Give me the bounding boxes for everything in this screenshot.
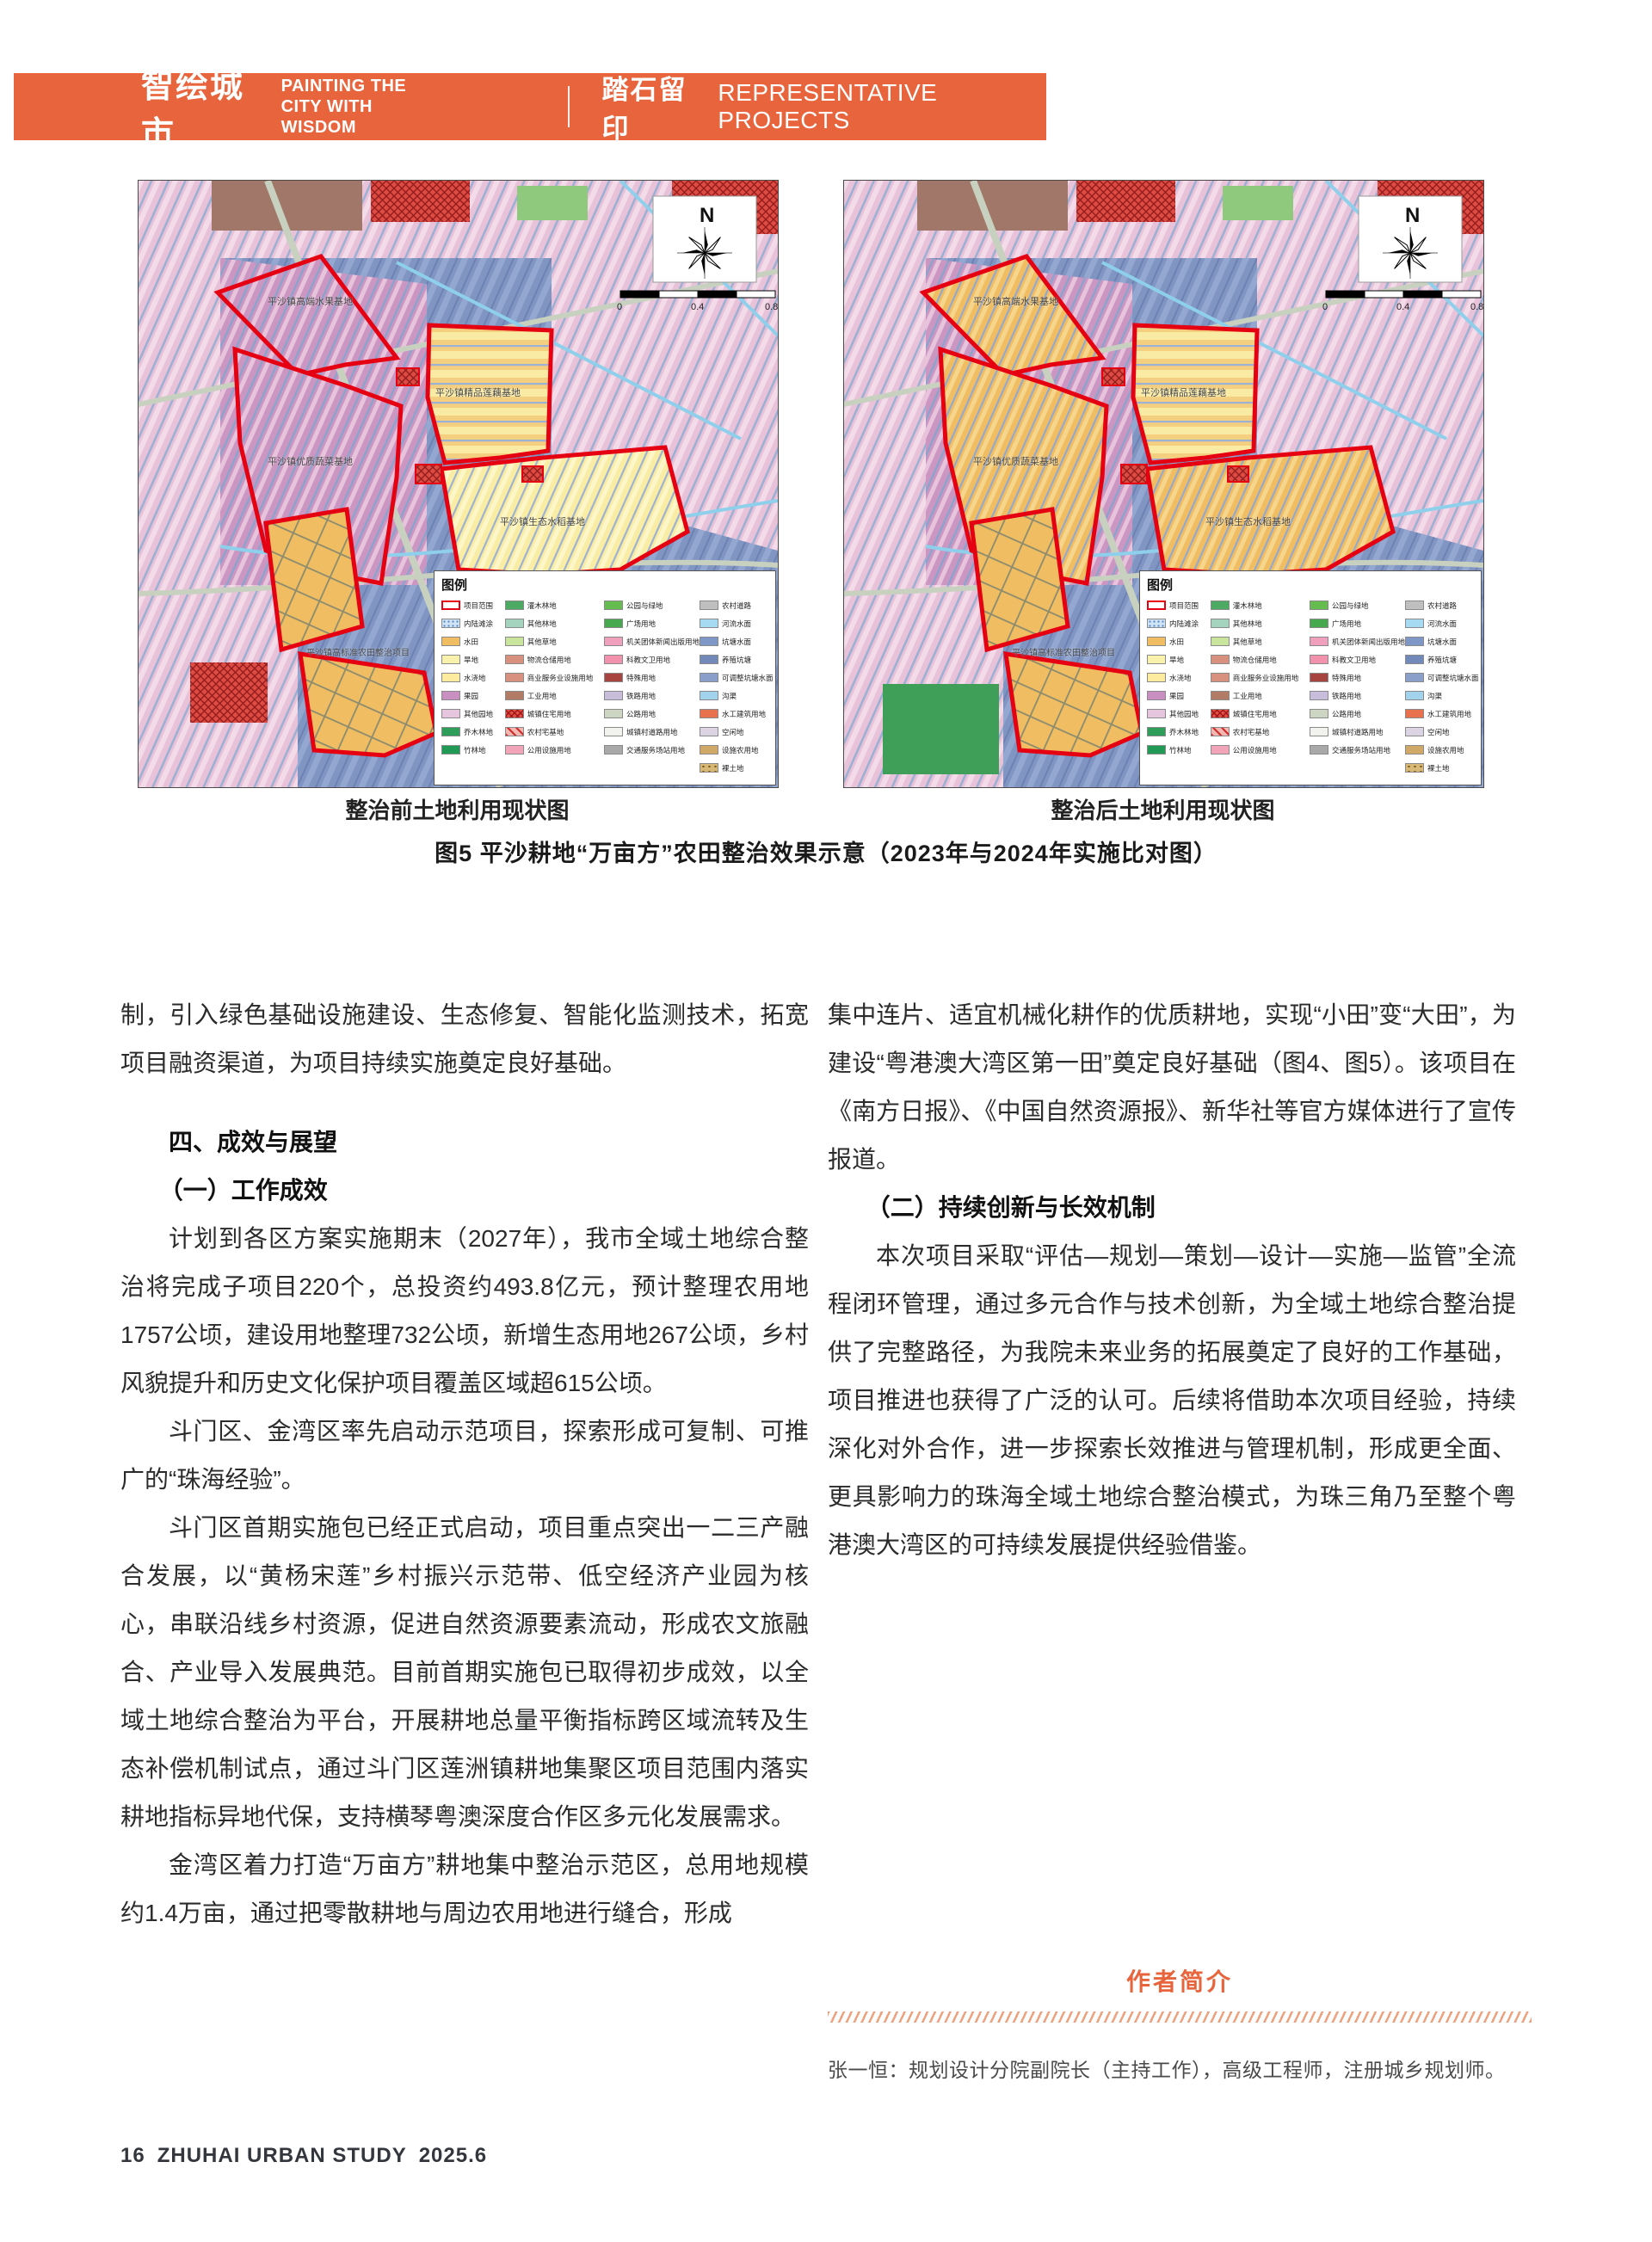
paragraph: 计划到各区方案实施期末（2027年），我市全域土地综合整治将完成子项目220个，… — [120, 1215, 809, 1407]
legend-label: 旱地 — [1169, 655, 1184, 665]
legend-swatch — [1211, 727, 1230, 736]
legend-label: 空闲地 — [1427, 727, 1450, 737]
village-patch — [1228, 466, 1248, 482]
legend-label: 水浇地 — [464, 673, 486, 683]
legend-label: 项目范围 — [1169, 601, 1199, 611]
paragraph: 本次项目采取“评估—规划—策划—设计—实施—监管”全流程闭环管理，通过多元合作与… — [828, 1232, 1516, 1569]
page-number: 16 — [120, 2144, 145, 2167]
subsection-heading-1: （一）工作成效 — [120, 1167, 809, 1215]
legend-label: 特殊用地 — [626, 673, 656, 683]
legend-label: 果园 — [464, 691, 478, 701]
legend-swatch — [441, 601, 460, 610]
legend-label: 农村道路 — [722, 601, 751, 611]
legend-label: 乔木林地 — [464, 727, 493, 737]
legend-swatch — [1147, 745, 1166, 755]
area-label: 平沙镇高标准农田整治项目 — [306, 645, 410, 658]
legend-item: 水浇地 — [441, 668, 505, 687]
legend-swatch — [441, 709, 460, 718]
legend-label: 河流水面 — [1427, 619, 1457, 629]
legend-swatch — [1147, 673, 1166, 682]
village-patch — [190, 662, 268, 723]
area-label: 平沙镇精品莲藕基地 — [1141, 385, 1226, 399]
legend-swatch — [441, 655, 460, 664]
legend-item: 内陆滩涂 — [1147, 614, 1211, 632]
legend-swatch — [604, 637, 623, 646]
legend-label: 裸土地 — [722, 763, 744, 773]
legend-swatch — [1147, 709, 1166, 718]
legend-item: 灌木林地 — [1211, 596, 1310, 614]
legend-label: 其他园地 — [464, 709, 493, 719]
legend-item: 其他草地 — [505, 632, 604, 650]
area-label: 平沙镇优质蔬菜基地 — [973, 454, 1058, 468]
legend-swatch — [1211, 673, 1230, 682]
legend-label: 灌木林地 — [527, 601, 557, 611]
legend-label: 水田 — [1169, 637, 1184, 647]
legend-item: 科教文卫用地 — [604, 650, 700, 668]
legend-label: 其他园地 — [1169, 709, 1199, 719]
legend-item: 农村宅基地 — [1211, 723, 1310, 741]
hatched-divider — [828, 2011, 1532, 2023]
legend-swatch — [1211, 619, 1230, 628]
legend-column: 项目范围内陆滩涂水田旱地水浇地果园其他园地乔木林地竹林地 — [441, 596, 505, 777]
area-label: 平沙镇优质蔬菜基地 — [268, 454, 353, 468]
legend-swatch — [441, 745, 460, 755]
village-patch — [522, 466, 543, 482]
legend-swatch — [700, 709, 718, 718]
legend-item: 工业用地 — [505, 687, 604, 705]
legend-swatch — [604, 655, 623, 664]
north-arrow: N — [1359, 196, 1462, 282]
legend-label: 水田 — [464, 637, 478, 647]
legend-label: 灌木林地 — [1233, 601, 1262, 611]
legend-item: 可调整坑塘水面 — [1405, 668, 1477, 687]
legend-item: 商业服务业设施用地 — [1211, 668, 1310, 687]
legend-item: 公用设施用地 — [1211, 741, 1310, 759]
legend-label: 城镇住宅用地 — [1233, 709, 1277, 719]
legend-swatch — [1310, 709, 1328, 718]
legend-swatch — [505, 745, 524, 755]
paragraph-continued: 制，引入绿色基础设施建设、生态修复、智能化监测技术，拓宽项目融资渠道，为项目持续… — [120, 991, 809, 1087]
legend-item: 沟渠 — [1405, 687, 1477, 705]
section-title-en: REPRESENTATIVE PROJECTS — [718, 79, 1046, 134]
legend-swatch — [700, 619, 718, 628]
legend-swatch — [1211, 637, 1230, 646]
legend-label: 机关团体新闻出版用地 — [626, 637, 700, 647]
legend-item: 工业用地 — [1211, 687, 1310, 705]
header-divider — [568, 86, 570, 127]
legend-swatch — [700, 745, 718, 755]
legend-item: 其他林地 — [1211, 614, 1310, 632]
legend-swatch — [1211, 745, 1230, 755]
legend-item: 公园与绿地 — [604, 596, 700, 614]
legend-swatch — [1310, 691, 1328, 700]
legend-swatch — [700, 691, 718, 700]
author-section: 作者简介 张一恒：规划设计分院副院长（主持工作），高级工程师，注册城乡规划师。 — [828, 1963, 1532, 2083]
legend-item: 城镇村道路用地 — [1310, 723, 1405, 741]
legend-label: 农村宅基地 — [1233, 727, 1270, 737]
svg-text:N: N — [1405, 204, 1420, 227]
svg-text:0.4: 0.4 — [1396, 302, 1409, 312]
legend-swatch — [1310, 601, 1328, 610]
svg-text:0.4: 0.4 — [691, 302, 704, 312]
section-heading: 四、成效与展望 — [120, 1118, 809, 1167]
legend-item: 可调整坑塘水面 — [700, 668, 772, 687]
legend-swatch — [1310, 637, 1328, 646]
legend-item: 物流仓储用地 — [505, 650, 604, 668]
legend-label: 科教文卫用地 — [1332, 655, 1376, 665]
map-caption-after: 整治后土地利用现状图 — [843, 793, 1482, 825]
legend-label: 广场用地 — [626, 619, 656, 629]
issue-number: 2025.6 — [419, 2144, 487, 2167]
legend-swatch — [1405, 637, 1424, 646]
green-block — [1223, 186, 1293, 220]
land-use-map-before: N 0 — [138, 180, 779, 788]
legend-item: 广场用地 — [1310, 614, 1405, 632]
paragraph: 斗门区、金湾区率先启动示范项目，探索形成可复制、可推广的“珠海经验”。 — [120, 1407, 809, 1504]
legend-item: 其他园地 — [1147, 705, 1211, 723]
legend-swatch — [1147, 655, 1166, 664]
legend-item: 项目范围 — [1147, 596, 1211, 614]
legend-label: 城镇村道路用地 — [626, 727, 678, 737]
figure-caption: 图5 平沙耕地“万亩方”农田整治效果示意（2023年与2024年实施比对图） — [0, 835, 1652, 868]
paragraph-continued: 集中连片、适宜机械化耕作的优质耕地，实现“小田”变“大田”，为建设“粤港澳大湾区… — [828, 991, 1516, 1184]
legend-label: 竹林地 — [464, 745, 486, 755]
legend-item: 广场用地 — [604, 614, 700, 632]
legend-label: 物流仓储用地 — [527, 655, 571, 665]
legend-swatch — [604, 673, 623, 682]
legend-item: 养殖坑塘 — [1405, 650, 1477, 668]
legend-item: 设施农用地 — [1405, 741, 1477, 759]
legend-label: 设施农用地 — [722, 745, 759, 755]
legend-swatch — [1211, 709, 1230, 718]
legend-item: 公用设施用地 — [505, 741, 604, 759]
legend-column: 公园与绿地广场用地机关团体新闻出版用地科教文卫用地特殊用地铁路用地公路用地城镇村… — [1310, 596, 1405, 777]
legend-item: 灌木林地 — [505, 596, 604, 614]
legend-label: 城镇住宅用地 — [527, 709, 571, 719]
legend-swatch — [505, 727, 524, 736]
journal-name: ZHUHAI URBAN STUDY — [157, 2144, 407, 2167]
legend-label: 工业用地 — [527, 691, 557, 701]
legend-swatch — [1310, 673, 1328, 682]
legend-label: 乔木林地 — [1169, 727, 1199, 737]
area-label: 平沙镇高端水果基地 — [973, 294, 1058, 308]
legend-item: 养殖坑塘 — [700, 650, 772, 668]
legend-label: 公园与绿地 — [626, 601, 663, 611]
legend-item: 农村道路 — [1405, 596, 1477, 614]
legend-item: 商业服务业设施用地 — [505, 668, 604, 687]
legend-item: 果园 — [1147, 687, 1211, 705]
village-patch — [1121, 465, 1147, 484]
legend-item: 其他草地 — [1211, 632, 1310, 650]
forest-patch — [883, 684, 999, 774]
legend-swatch — [505, 691, 524, 700]
legend-item: 坑塘水面 — [1405, 632, 1477, 650]
legend-label: 可调整坑塘水面 — [1427, 673, 1479, 683]
legend-item: 项目范围 — [441, 596, 505, 614]
section-title-cn: 踏石留印 — [602, 68, 706, 145]
legend-swatch — [1310, 655, 1328, 664]
area-label: 平沙镇高标准农田整治项目 — [1012, 645, 1115, 658]
legend-item: 水工建筑用地 — [700, 705, 772, 723]
village-block — [1076, 181, 1175, 222]
legend-item: 公路用地 — [1310, 705, 1405, 723]
legend-swatch — [441, 637, 460, 646]
legend-item: 竹林地 — [441, 741, 505, 759]
legend-item: 农村道路 — [700, 596, 772, 614]
page-footer: 16ZHUHAI URBAN STUDY2025.6 — [120, 2144, 499, 2168]
legend-swatch — [1405, 619, 1424, 628]
svg-text:0.8: 0.8 — [765, 302, 778, 312]
north-arrow: N — [653, 196, 756, 282]
legend-swatch — [1405, 727, 1424, 736]
legend-label: 养殖坑塘 — [722, 655, 751, 665]
legend-item: 河流水面 — [700, 614, 772, 632]
article-left-column: 制，引入绿色基础设施建设、生态修复、智能化监测技术，拓宽项目融资渠道，为项目持续… — [120, 991, 809, 1937]
legend-swatch — [1147, 637, 1166, 646]
brand-en-line2: CITY WITH WISDOM — [281, 96, 439, 138]
legend-swatch — [604, 727, 623, 736]
brand-en-line1: PAINTING THE — [281, 76, 439, 96]
author-section-title: 作者简介 — [828, 1963, 1532, 1998]
legend-item: 城镇住宅用地 — [505, 705, 604, 723]
legend-label: 商业服务业设施用地 — [527, 673, 594, 683]
legend-swatch — [441, 691, 460, 700]
project-boundary — [971, 509, 1068, 650]
legend-item: 机关团体新闻出版用地 — [1310, 632, 1405, 650]
legend-label: 其他林地 — [527, 619, 557, 629]
legend-label: 内陆滩涂 — [1169, 619, 1199, 629]
legend-swatch — [1405, 691, 1424, 700]
legend-label: 农村道路 — [1427, 601, 1457, 611]
legend-label: 养殖坑塘 — [1427, 655, 1457, 665]
legend-swatch — [700, 637, 718, 646]
legend-swatch — [1310, 727, 1328, 736]
legend-swatch — [505, 709, 524, 718]
legend-swatch — [1405, 745, 1424, 755]
article-right-column: 集中连片、适宜机械化耕作的优质耕地，实现“小田”变“大田”，为建设“粤港澳大湾区… — [828, 991, 1516, 1569]
svg-text:0: 0 — [1322, 302, 1328, 312]
map-caption-before: 整治前土地利用现状图 — [138, 793, 777, 825]
legend-label: 商业服务业设施用地 — [1233, 673, 1299, 683]
legend-label: 河流水面 — [722, 619, 751, 629]
legend-item: 机关团体新闻出版用地 — [604, 632, 700, 650]
legend-item: 其他林地 — [505, 614, 604, 632]
svg-text:N: N — [700, 204, 714, 227]
legend-swatch — [1405, 763, 1424, 773]
area-label: 平沙镇生态水稻基地 — [1205, 514, 1291, 528]
legend-item: 铁路用地 — [604, 687, 700, 705]
map-legend: 图例 项目范围内陆滩涂水田旱地水浇地果园其他园地乔木林地竹林地 灌木林地其他林地… — [434, 570, 776, 785]
legend-label: 设施农用地 — [1427, 745, 1464, 755]
legend-swatch — [441, 619, 460, 628]
legend-swatch — [505, 637, 524, 646]
green-block — [517, 186, 588, 220]
legend-label: 公用设施用地 — [1233, 745, 1277, 755]
legend-label: 竹林地 — [1169, 745, 1192, 755]
legend-item: 旱地 — [441, 650, 505, 668]
legend-item: 其他园地 — [441, 705, 505, 723]
legend-swatch — [700, 655, 718, 664]
legend-swatch — [1405, 673, 1424, 682]
legend-item: 空闲地 — [700, 723, 772, 741]
legend-title: 图例 — [1147, 576, 1477, 594]
legend-label: 沟渠 — [722, 691, 737, 701]
legend-label: 机关团体新闻出版用地 — [1332, 637, 1405, 647]
paragraph: 金湾区着力打造“万亩方”耕地集中整治示范区，总用地规模约1.4万亩，通过把零散耕… — [120, 1841, 809, 1937]
legend-label: 内陆滩涂 — [464, 619, 493, 629]
header-banner: 智绘城市 PAINTING THE CITY WITH WISDOM 踏石留印 … — [14, 73, 1046, 140]
area-label: 平沙镇高端水果基地 — [268, 294, 353, 308]
paragraph: 斗门区首期实施包已经正式启动，项目重点突出一二三产融合发展，以“黄杨宋莲”乡村振… — [120, 1504, 809, 1841]
legend-item: 裸土地 — [1405, 759, 1477, 777]
legend-swatch — [1405, 709, 1424, 718]
brand-title-cn: 智绘城市 — [141, 59, 268, 154]
legend-label: 铁路用地 — [626, 691, 656, 701]
legend-item: 城镇住宅用地 — [1211, 705, 1310, 723]
village-patch — [397, 368, 419, 385]
legend-swatch — [1405, 601, 1424, 610]
legend-title: 图例 — [441, 576, 772, 594]
map-legend: 图例 项目范围内陆滩涂水田旱地水浇地果园其他园地乔木林地竹林地 灌木林地其他林地… — [1139, 570, 1482, 785]
legend-label: 可调整坑塘水面 — [722, 673, 774, 683]
legend-label: 坑塘水面 — [722, 637, 751, 647]
legend-label: 特殊用地 — [1332, 673, 1361, 683]
legend-label: 裸土地 — [1427, 763, 1450, 773]
legend-label: 公园与绿地 — [1332, 601, 1369, 611]
legend-column: 农村道路河流水面坑塘水面养殖坑塘可调整坑塘水面沟渠水工建筑用地空闲地设施农用地裸… — [700, 596, 772, 777]
legend-item: 水田 — [1147, 632, 1211, 650]
legend-column: 灌木林地其他林地其他草地物流仓储用地商业服务业设施用地工业用地城镇住宅用地农村宅… — [505, 596, 604, 777]
legend-swatch — [505, 673, 524, 682]
legend-item: 沟渠 — [700, 687, 772, 705]
legend-label: 项目范围 — [464, 601, 493, 611]
legend-label: 科教文卫用地 — [626, 655, 670, 665]
legend-label: 广场用地 — [1332, 619, 1361, 629]
legend-item: 设施农用地 — [700, 741, 772, 759]
legend-label: 交通服务场站用地 — [626, 745, 685, 755]
legend-swatch — [1405, 655, 1424, 664]
author-bio: 张一恒：规划设计分院副院长（主持工作），高级工程师，注册城乡规划师。 — [828, 2054, 1532, 2083]
legend-swatch — [1310, 619, 1328, 628]
legend-label: 交通服务场站用地 — [1332, 745, 1390, 755]
legend-swatch — [604, 601, 623, 610]
project-boundary — [266, 509, 362, 650]
legend-swatch — [1147, 691, 1166, 700]
legend-item: 农村宅基地 — [505, 723, 604, 741]
legend-label: 其他草地 — [527, 637, 557, 647]
legend-label: 铁路用地 — [1332, 691, 1361, 701]
legend-swatch — [1211, 691, 1230, 700]
legend-label: 沟渠 — [1427, 691, 1442, 701]
legend-item: 公园与绿地 — [1310, 596, 1405, 614]
legend-item: 科教文卫用地 — [1310, 650, 1405, 668]
legend-swatch — [505, 601, 524, 610]
legend-item: 铁路用地 — [1310, 687, 1405, 705]
legend-label: 水工建筑用地 — [1427, 709, 1471, 719]
legend-label: 空闲地 — [722, 727, 744, 737]
area-label: 平沙镇生态水稻基地 — [500, 514, 585, 528]
legend-swatch — [604, 619, 623, 628]
legend-column: 公园与绿地广场用地机关团体新闻出版用地科教文卫用地特殊用地铁路用地公路用地城镇村… — [604, 596, 700, 777]
legend-item: 坑塘水面 — [700, 632, 772, 650]
legend-swatch — [700, 727, 718, 736]
land-use-map-after: N 0 0. — [843, 180, 1484, 788]
legend-label: 物流仓储用地 — [1233, 655, 1277, 665]
legend-item: 水工建筑用地 — [1405, 705, 1477, 723]
legend-item: 内陆滩涂 — [441, 614, 505, 632]
legend-item: 公路用地 — [604, 705, 700, 723]
legend-label: 工业用地 — [1233, 691, 1262, 701]
legend-swatch — [505, 619, 524, 628]
legend-item: 旱地 — [1147, 650, 1211, 668]
legend-label: 公用设施用地 — [527, 745, 571, 755]
legend-swatch — [441, 727, 460, 736]
legend-swatch — [604, 745, 623, 755]
legend-label: 果园 — [1169, 691, 1184, 701]
legend-swatch — [700, 763, 718, 773]
legend-label: 农村宅基地 — [527, 727, 564, 737]
legend-swatch — [441, 673, 460, 682]
legend-item: 水浇地 — [1147, 668, 1211, 687]
legend-item: 河流水面 — [1405, 614, 1477, 632]
legend-label: 水工建筑用地 — [722, 709, 766, 719]
legend-item: 特殊用地 — [604, 668, 700, 687]
subsection-heading-2: （二）持续创新与长效机制 — [828, 1184, 1516, 1232]
village-patch — [416, 465, 441, 484]
legend-swatch — [604, 709, 623, 718]
legend-label: 水浇地 — [1169, 673, 1192, 683]
legend-label: 公路用地 — [1332, 709, 1361, 719]
legend-swatch — [700, 673, 718, 682]
legend-item: 果园 — [441, 687, 505, 705]
brand-title-en: PAINTING THE CITY WITH WISDOM — [281, 76, 439, 138]
legend-item: 水田 — [441, 632, 505, 650]
legend-item: 竹林地 — [1147, 741, 1211, 759]
legend-column: 项目范围内陆滩涂水田旱地水浇地果园其他园地乔木林地竹林地 — [1147, 596, 1211, 777]
village-patch — [1102, 368, 1125, 385]
legend-swatch — [1147, 601, 1166, 610]
legend-swatch — [505, 655, 524, 664]
legend-swatch — [604, 691, 623, 700]
legend-swatch — [1147, 727, 1166, 736]
legend-item: 交通服务场站用地 — [1310, 741, 1405, 759]
legend-item: 交通服务场站用地 — [604, 741, 700, 759]
legend-label: 城镇村道路用地 — [1332, 727, 1384, 737]
legend-swatch — [1147, 619, 1166, 628]
legend-label: 坑塘水面 — [1427, 637, 1457, 647]
legend-swatch — [1211, 655, 1230, 664]
legend-column: 农村道路河流水面坑塘水面养殖坑塘可调整坑塘水面沟渠水工建筑用地空闲地设施农用地裸… — [1405, 596, 1477, 777]
legend-swatch — [1211, 601, 1230, 610]
svg-text:0: 0 — [617, 302, 622, 312]
legend-column: 灌木林地其他林地其他草地物流仓储用地商业服务业设施用地工业用地城镇住宅用地农村宅… — [1211, 596, 1310, 777]
legend-label: 其他草地 — [1233, 637, 1262, 647]
legend-swatch — [1310, 745, 1328, 755]
legend-item: 特殊用地 — [1310, 668, 1405, 687]
legend-item: 乔木林地 — [1147, 723, 1211, 741]
legend-item: 城镇村道路用地 — [604, 723, 700, 741]
legend-item: 空闲地 — [1405, 723, 1477, 741]
legend-swatch — [700, 601, 718, 610]
legend-item: 物流仓储用地 — [1211, 650, 1310, 668]
legend-label: 其他林地 — [1233, 619, 1262, 629]
svg-text:0.8: 0.8 — [1470, 302, 1483, 312]
legend-item: 裸土地 — [700, 759, 772, 777]
legend-label: 公路用地 — [626, 709, 656, 719]
area-label: 平沙镇精品莲藕基地 — [435, 385, 521, 399]
journal-page: 智绘城市 PAINTING THE CITY WITH WISDOM 踏石留印 … — [0, 0, 1652, 2242]
legend-item: 乔木林地 — [441, 723, 505, 741]
